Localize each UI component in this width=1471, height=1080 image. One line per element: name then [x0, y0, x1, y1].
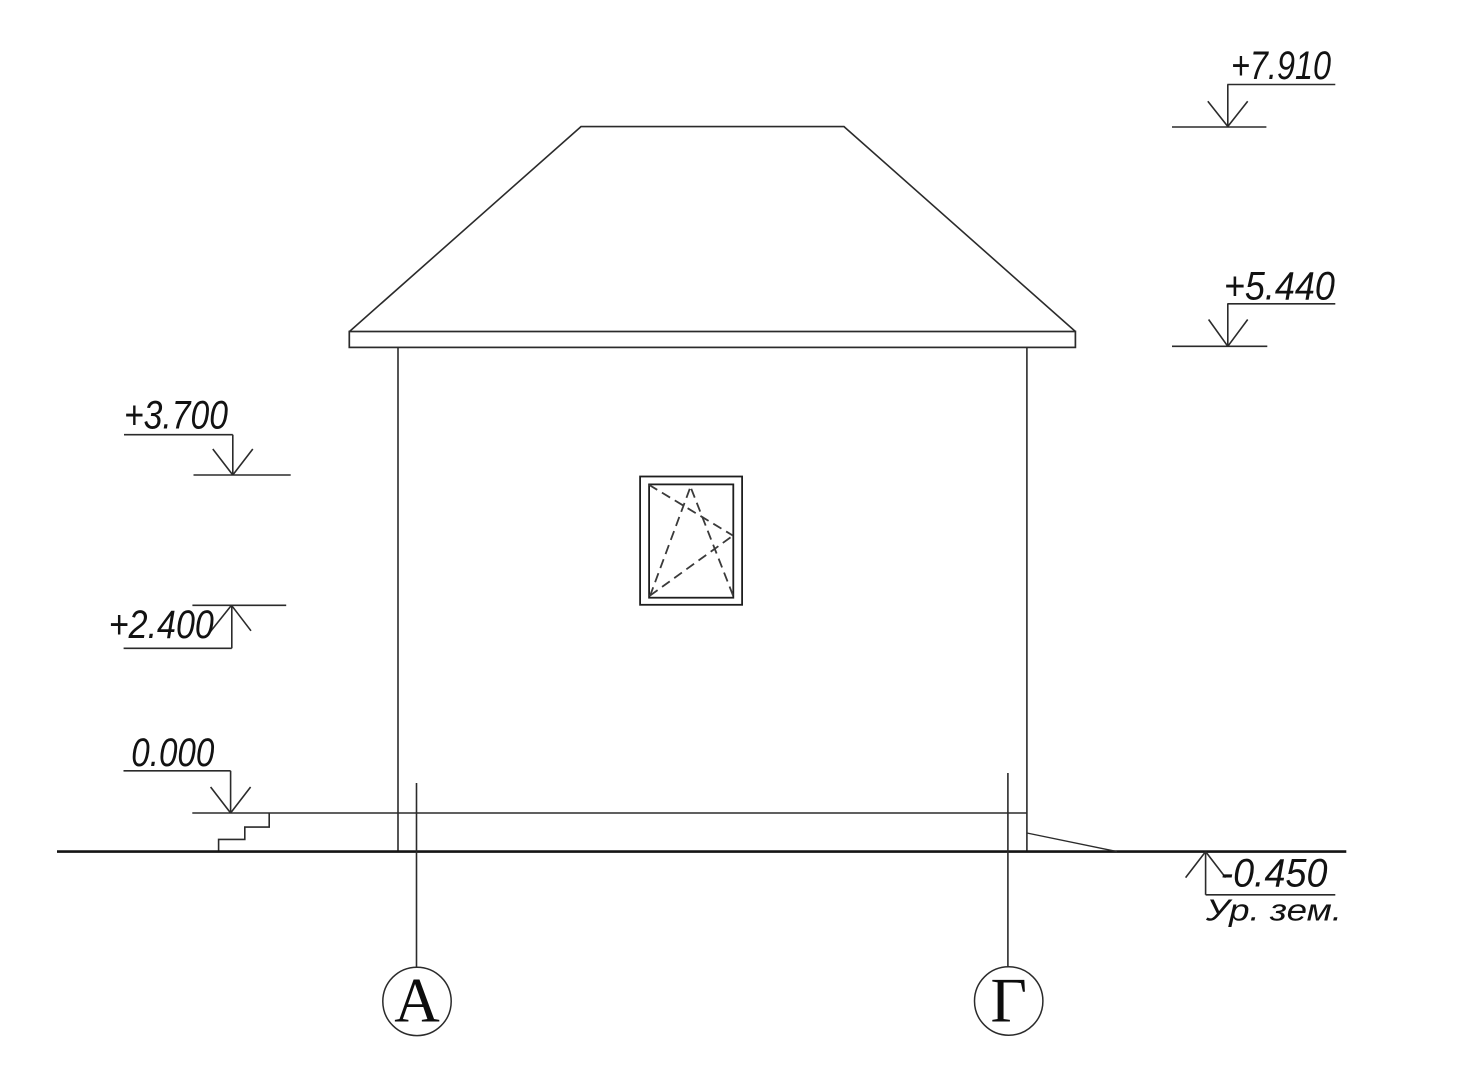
- svg-text:Ур. зем.: Ур. зем.: [1205, 893, 1342, 928]
- svg-text:Г: Г: [990, 966, 1026, 1036]
- svg-text:0.000: 0.000: [131, 731, 214, 775]
- svg-text:+3.700: +3.700: [124, 394, 228, 438]
- svg-text:+7.910: +7.910: [1231, 44, 1331, 88]
- svg-text:+2.400: +2.400: [109, 603, 214, 647]
- svg-text:А: А: [394, 966, 440, 1036]
- svg-text:-0.450: -0.450: [1221, 851, 1328, 895]
- svg-text:+5.440: +5.440: [1224, 265, 1335, 309]
